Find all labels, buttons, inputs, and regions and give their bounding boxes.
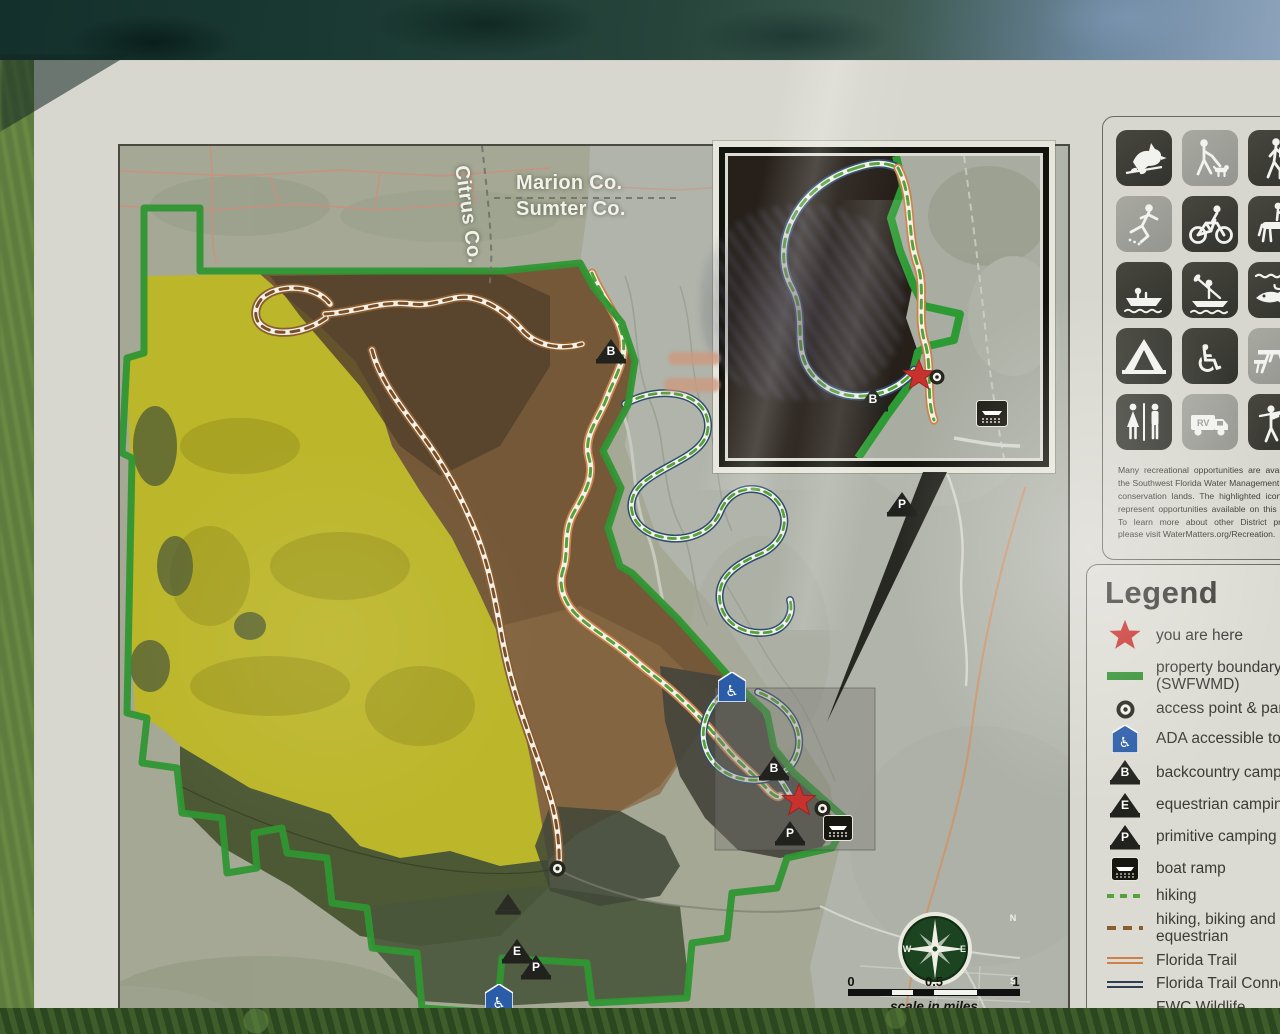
camping-icon (1116, 328, 1172, 384)
ada-accessible-icon: ♿ (1182, 328, 1238, 384)
recreation-icon-grid: ♿ RV (1116, 130, 1280, 450)
legend-item-ada-toilet: ♿ ADA accessible toilet (1105, 722, 1280, 756)
svg-text:♿: ♿ (725, 682, 738, 700)
primitive-tent-icon: P (1110, 824, 1140, 850)
hbe-trail-line-icon (1105, 926, 1145, 930)
legend-item-boat-ramp: boat ramp (1105, 853, 1280, 883)
boat-ramp-marker (823, 815, 853, 846)
hiking-icon (1248, 130, 1280, 186)
hiking-trail-line-icon (1105, 894, 1145, 898)
inset-access-point-marker (929, 369, 945, 390)
boat-ramp-icon (1105, 857, 1145, 881)
backcountry-camping-marker: B (596, 338, 626, 364)
dog-walking-icon (1182, 130, 1238, 186)
paddling-icon (1182, 262, 1238, 318)
legend-item-property-boundary: property boundary (SWFWMD) (1105, 655, 1280, 696)
boating-icon (1116, 262, 1172, 318)
recreation-icon-panel: ♿ RV Many recreational opportunities are… (1102, 116, 1280, 560)
county-label-marion: Marion Co. (516, 172, 622, 195)
florida-trail-connector-line-icon (1105, 981, 1145, 988)
scale-tick-1: 1 (1012, 974, 1019, 989)
backcountry-camping-marker: B (759, 755, 789, 781)
legend-item-florida-trail-connector: Florida Trail Connector (1105, 972, 1280, 996)
legend-item-primitive-camping: P primitive camping (1105, 821, 1280, 853)
hunting-icon (1248, 394, 1280, 450)
map-poster-board: Marion Co. Sumter Co. Citrus Co. B ♿ B P (30, 56, 1280, 1008)
legend-panel: Legend you are here property boundary (S… (1086, 564, 1280, 1034)
restrooms-icon (1116, 394, 1172, 450)
reflection-finger (668, 352, 720, 365)
backcountry-tent-icon: B (1110, 759, 1140, 785)
legend-item-florida-trail: Florida Trail (1105, 949, 1280, 973)
ada-toilet-marker: ♿ (718, 672, 746, 702)
grass-edge-bottom (0, 1008, 1280, 1034)
inset-pointer-wedge (810, 456, 960, 736)
legend-item-equestrian-camping: E equestrian camping (1105, 789, 1280, 821)
inset-primitive-marker: P (887, 491, 917, 517)
you-are-here-star-icon (1105, 618, 1145, 652)
legend-item-access-point: access point & parking (1105, 696, 1280, 721)
scale-tick-0: 0 (847, 974, 854, 989)
tree-reflection-top (0, 0, 1280, 60)
legend-item-hiking-biking-equestrian: hiking, biking and equestrian (1105, 907, 1280, 948)
county-label-sumter: Sumter Co. (516, 198, 626, 221)
access-point-marker (549, 860, 566, 882)
bicycling-icon (1182, 196, 1238, 252)
equestrian-tent-icon: E (1110, 792, 1140, 818)
primitive-camping-marker: P (521, 954, 551, 980)
access-point-icon (1105, 700, 1145, 719)
svg-text:♿: ♿ (1193, 337, 1227, 381)
rv-camping-icon: RV (1182, 394, 1238, 450)
trailhead-map-sign-photo: Marion Co. Sumter Co. Citrus Co. B ♿ B P (0, 0, 1280, 1034)
grass-edge-left (0, 0, 34, 1034)
svg-text:RV: RV (1197, 418, 1209, 428)
compass-n: N (974, 913, 1052, 923)
skating-icon (1116, 196, 1172, 252)
compass-w: W (868, 944, 946, 954)
legend-title: Legend (1105, 575, 1280, 611)
scale-bar-segments (848, 989, 1020, 996)
glass-reflection-silhouette (700, 205, 905, 400)
inset-boat-ramp-marker (976, 400, 1008, 432)
bird-watching-icon (1116, 130, 1172, 186)
ada-toilet-icon: ♿ (1105, 725, 1145, 753)
legend-item-hiking: hiking (1105, 884, 1280, 908)
florida-trail-line-icon (1105, 957, 1145, 964)
reflection-finger (664, 378, 720, 392)
fishing-icon (1248, 262, 1280, 318)
property-boundary-line-icon (1105, 672, 1145, 680)
inset-backcountry-marker: B (858, 386, 888, 412)
tent-marker (495, 893, 521, 915)
legend-item-backcountry-camping: B backcountry camping (1105, 756, 1280, 788)
scale-tick-05: 0.5 (925, 974, 943, 989)
recreation-note: Many recreational opportunities are avai… (1118, 464, 1280, 541)
you-are-here-star (781, 782, 817, 823)
primitive-camping-marker: P (775, 820, 805, 846)
svg-text:♿: ♿ (1119, 735, 1132, 751)
picnicking-icon (1248, 328, 1280, 384)
horseback-riding-icon (1248, 196, 1280, 252)
legend-item-you-are-here: you are here (1105, 615, 1280, 655)
